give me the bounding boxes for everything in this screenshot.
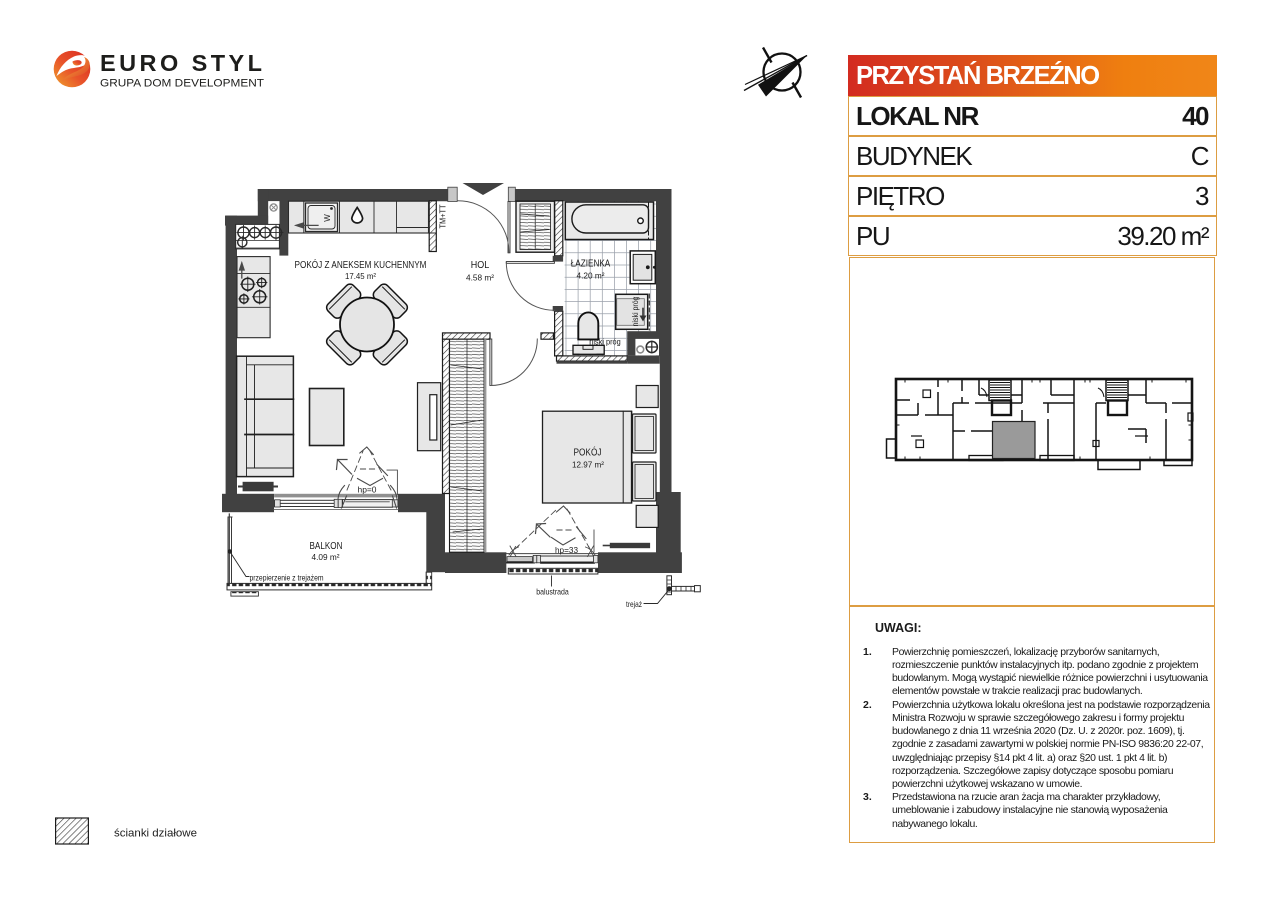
svg-text:4.20 m²: 4.20 m² — [577, 271, 605, 281]
svg-text:12.97 m²: 12.97 m² — [572, 460, 604, 470]
svg-text:4.58 m²: 4.58 m² — [466, 273, 494, 283]
svg-text:POKÓJ Z ANEKSEM KUCHENNYM: POKÓJ Z ANEKSEM KUCHENNYM — [295, 260, 427, 271]
svg-text:trejaż: trejaż — [626, 599, 642, 609]
svg-text:niski próg: niski próg — [589, 337, 621, 346]
svg-text:przepierzenie z trejażem: przepierzenie z trejażem — [250, 573, 324, 583]
svg-text:BALKON: BALKON — [310, 541, 343, 552]
svg-text:balustrada: balustrada — [536, 587, 569, 597]
svg-text:TM+TT: TM+TT — [439, 205, 448, 229]
svg-text:4.09 m²: 4.09 m² — [312, 552, 340, 562]
svg-text:hp=33: hp=33 — [555, 546, 578, 555]
svg-text:hp=0: hp=0 — [358, 485, 377, 494]
svg-text:ścianki działowe: ścianki działowe — [114, 828, 197, 840]
svg-text:W: W — [323, 214, 332, 222]
svg-text:HOL: HOL — [471, 260, 490, 271]
svg-text:POKÓJ: POKÓJ — [574, 448, 602, 459]
svg-text:ŁAZIENKA: ŁAZIENKA — [571, 259, 611, 270]
svg-text:17.45 m²: 17.45 m² — [345, 271, 376, 281]
svg-text:niski próg: niski próg — [631, 297, 640, 327]
